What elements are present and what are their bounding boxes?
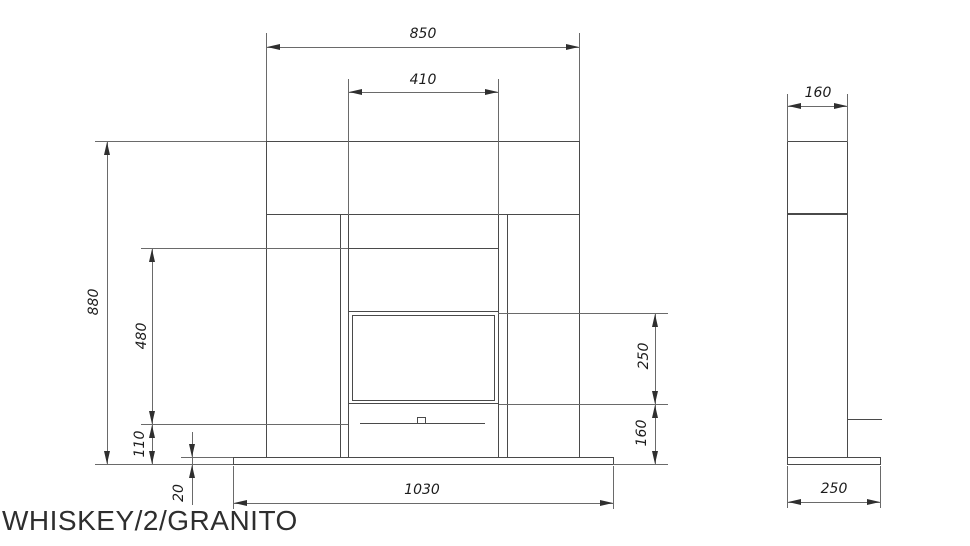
side-base-outline <box>787 457 881 465</box>
dim-burner-height-label: 110 <box>132 431 148 458</box>
extension-line <box>613 464 668 465</box>
extension-line <box>181 457 233 458</box>
side-shelf-line <box>787 213 848 215</box>
right-leg-outer-line <box>579 214 580 457</box>
dim-arrow <box>149 249 155 262</box>
dim-overall-height-label: 880 <box>86 289 102 316</box>
drawing-title: WHISKEY/2/GRANITO <box>2 505 298 537</box>
dim-window-floor-label: 160 <box>634 420 650 447</box>
mantel-shelf-outline <box>266 141 580 215</box>
extension-line <box>348 79 349 215</box>
dim-arrow <box>349 89 362 95</box>
burner-knob <box>417 417 426 424</box>
dim-arrow <box>652 405 658 418</box>
dim-base-width-label: 1030 <box>404 482 440 498</box>
dim-arrow <box>652 451 658 464</box>
fireplace-technical-drawing: 850 410 880 480 110 <box>0 0 970 546</box>
opening-top-line <box>348 248 499 249</box>
dim-opening-height-label: 480 <box>134 323 150 350</box>
right-leg-inner-line <box>507 214 508 457</box>
dim-arrow <box>189 465 195 478</box>
dim-arrow <box>566 44 579 50</box>
dim-arrow <box>867 499 880 505</box>
extension-line <box>95 141 266 142</box>
left-leg-inner-line <box>340 214 341 457</box>
dim-side-top-depth-label: 160 <box>805 85 832 101</box>
dim-window-height-label: 250 <box>636 343 652 370</box>
extension-line <box>847 94 848 142</box>
dim-arrow <box>104 142 110 155</box>
dim-base-thickness-label: 20 <box>171 484 187 502</box>
dimension-line <box>107 141 108 464</box>
dim-arrow <box>149 411 155 424</box>
left-leg-outer-line <box>266 214 267 457</box>
extension-line <box>787 94 788 142</box>
dim-opening-width-label: 410 <box>410 72 437 88</box>
extension-line <box>579 33 580 141</box>
dimension-line <box>152 248 153 424</box>
dim-arrow <box>149 425 155 438</box>
side-column-outline <box>787 141 848 458</box>
dim-arrow <box>267 44 280 50</box>
base-slab-outline <box>233 457 614 465</box>
extension-line <box>95 464 233 465</box>
dim-arrow <box>104 451 110 464</box>
dim-arrow <box>652 314 658 327</box>
extension-line <box>141 248 348 249</box>
dim-arrow <box>149 451 155 464</box>
dim-arrow <box>189 444 195 457</box>
extension-line <box>498 313 668 314</box>
dim-mantel-width-label: 850 <box>410 26 437 42</box>
dim-arrow <box>600 500 613 506</box>
extension-line <box>141 424 348 425</box>
extension-line <box>499 404 668 405</box>
dim-arrow <box>788 499 801 505</box>
dim-side-base-depth-label: 250 <box>821 481 848 497</box>
dimension-line <box>348 92 499 93</box>
dimension-line <box>233 503 614 504</box>
dimension-line <box>266 47 580 48</box>
dim-arrow <box>652 391 658 404</box>
dim-arrow <box>834 103 847 109</box>
side-burner-ledge-line <box>847 419 882 420</box>
dim-arrow <box>788 103 801 109</box>
dim-arrow <box>485 89 498 95</box>
firebox-window-glass <box>352 315 495 401</box>
extension-line <box>498 79 499 215</box>
